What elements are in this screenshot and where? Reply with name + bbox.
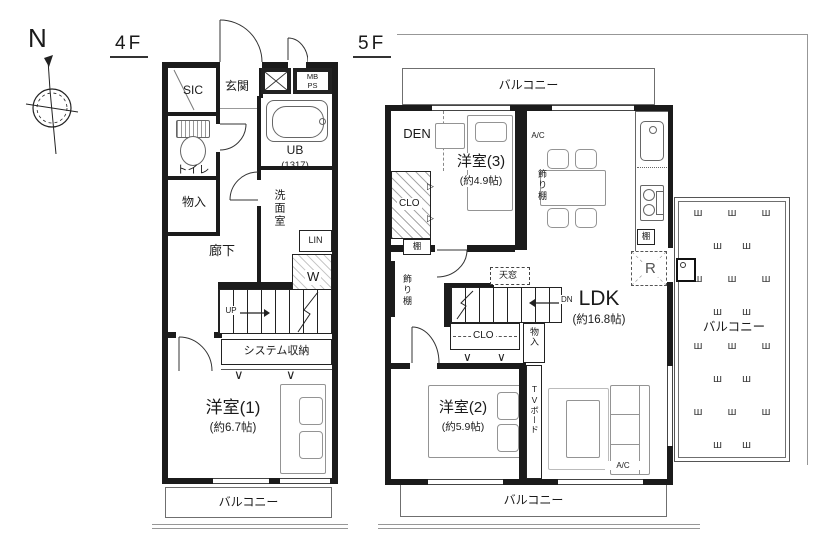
shelf-kitchen-box: 棚	[637, 229, 655, 245]
wall	[391, 363, 410, 369]
grass-tuft-icon: ш	[728, 407, 737, 418]
living-table-icon	[566, 400, 600, 458]
floor5-balcony-bottom: バルコニー	[400, 484, 667, 517]
grass-tuft-icon: ш	[742, 440, 751, 451]
grass-tuft-icon: ш	[742, 241, 751, 252]
meter-box-label: MB PS	[297, 73, 328, 90]
compass-north-label: N	[28, 24, 47, 54]
x-cross-icon	[265, 72, 287, 90]
balcony-door-opening	[667, 248, 673, 282]
toilet-door-icon	[218, 122, 248, 152]
linen-label: LIN	[300, 235, 331, 245]
grass-tuft-icon: ш	[742, 374, 751, 385]
balcony-fixture-box	[676, 258, 696, 282]
sink-icon	[640, 121, 664, 161]
skylight-box: 天窓	[490, 267, 530, 285]
grass-tuft-icon: ш	[762, 341, 771, 352]
toilet-bowl-icon	[180, 136, 206, 166]
display-shelf-right-label: 飾り棚	[528, 157, 546, 213]
grass-tuft-icon: ш	[694, 341, 703, 352]
chair-icon	[575, 208, 597, 228]
window-icon	[558, 479, 643, 485]
bedroom3-name: 洋室(3)	[455, 153, 507, 170]
floor4-balcony: バルコニー	[165, 487, 332, 518]
window-icon	[432, 105, 510, 111]
window-icon	[552, 105, 634, 111]
bedroom1-size: (約6.7帖)	[210, 422, 257, 434]
up-arrow-icon	[240, 308, 270, 318]
pillow-icon	[299, 397, 323, 425]
roof-balcony: шшшшшшшшшшшшшшшшшшшш バルコニー	[674, 197, 790, 462]
meter-box-door-icon	[286, 36, 308, 62]
fridge-label: R	[643, 260, 658, 277]
wall	[257, 96, 261, 170]
floorplan-canvas: N 4F 5F SIC 玄関	[0, 0, 828, 552]
bedroom1-name: 洋室(1)	[206, 398, 261, 417]
stove-icon	[640, 185, 664, 221]
ldk-label: LDK	[559, 287, 639, 311]
grass-tuft-icon: ш	[728, 274, 737, 285]
sic-label: SIC	[170, 84, 216, 98]
unit-bath-label: UB (1317)	[262, 144, 328, 172]
floor5-balcony-top-label: バルコニー	[403, 79, 654, 93]
wall	[257, 206, 261, 284]
bedroom2-label: 洋室(2) (約5.9帖)	[421, 399, 505, 436]
chair-icon	[575, 149, 597, 169]
unit-bath-size: (1317)	[281, 160, 308, 171]
floor4-plan: SIC 玄関 MB PS UB (1317) トイレ 物入	[162, 62, 338, 484]
system-storage-box: システム収納	[221, 339, 332, 365]
faucet-icon	[649, 126, 657, 134]
den-label: DEN	[395, 127, 439, 142]
wall	[168, 232, 220, 236]
pipe-support-icon: ∨	[286, 368, 296, 381]
window-icon	[667, 366, 673, 446]
stair-break-icon	[296, 290, 322, 334]
floor5-balcony-bottom-label: バルコニー	[401, 494, 666, 508]
wall	[168, 112, 220, 116]
burner-icon	[643, 204, 655, 216]
skylight-label: 天窓	[497, 270, 519, 280]
tv-board-box: TVボード	[526, 365, 542, 479]
stair-break-icon	[453, 289, 475, 321]
system-storage-label: システム収納	[222, 345, 331, 358]
closet1-box: CLO	[391, 171, 431, 239]
toilet-label: トイレ	[169, 164, 217, 177]
grass-tuft-icon: ш	[762, 274, 771, 285]
bathtub-inner	[272, 106, 324, 138]
storage-label-5f: 物入	[529, 327, 538, 347]
grass-tuft-icon: ш	[713, 307, 722, 318]
ac-upper-label: A/C	[525, 131, 551, 140]
grass-tuft-icon: ш	[694, 407, 703, 418]
lower-edge-line-5f	[378, 524, 700, 529]
ldk-size-label: (約16.8帖)	[549, 314, 649, 327]
floor5-title: 5F	[353, 33, 391, 58]
bedroom1-door-icon	[176, 335, 214, 373]
roof-balcony-label: バルコニー	[689, 320, 779, 334]
ac-lower-label: A/C	[605, 461, 641, 470]
grass-tuft-icon: ш	[762, 208, 771, 219]
washroom-label: 洗面室	[266, 176, 284, 240]
storage-box-5f: 物入	[523, 323, 545, 363]
chair-icon	[547, 149, 569, 169]
wall	[519, 363, 526, 479]
floor5-balcony-top: バルコニー	[402, 68, 655, 105]
shelf-kitchen-label: 棚	[638, 232, 654, 242]
bedroom3-size: (約4.9帖)	[458, 175, 505, 187]
meter-opening	[288, 62, 306, 68]
window-icon	[428, 479, 503, 485]
display-shelf-left-label: 飾り棚	[395, 263, 411, 317]
washroom-door-icon	[228, 170, 260, 202]
bedroom3-label: 洋室(3) (約4.9帖)	[441, 153, 521, 190]
entrance-door-icon	[216, 18, 264, 64]
pipe-support-icon: ∨	[497, 351, 506, 363]
entrance-opening	[220, 62, 262, 68]
floor4-title: 4F	[110, 33, 148, 58]
sofa-cushion-line	[611, 414, 639, 415]
hanger-arrow-icon: ▷	[427, 181, 434, 191]
grass-tuft-icon: ш	[713, 241, 722, 252]
pipe-support-icon: ∨	[463, 351, 472, 363]
window-icon	[213, 478, 269, 484]
unit-bath-name: UB	[287, 143, 304, 157]
corridor-label: 廊下	[196, 244, 248, 259]
bedroom2-door-icon	[410, 325, 440, 365]
desk-icon	[435, 123, 465, 149]
dining-table-icon	[540, 170, 606, 206]
pillow-icon	[475, 122, 507, 142]
bedroom1-label: 洋室(1) (約6.7帖)	[174, 398, 292, 437]
bedroom2-size: (約5.9帖)	[440, 421, 487, 433]
closet2-label: CLO	[471, 330, 496, 342]
lower-edge-line-4f	[152, 524, 348, 529]
grass-tuft-icon: ш	[713, 440, 722, 451]
wall	[168, 332, 176, 338]
hanger-arrow-icon: ▷	[427, 213, 434, 223]
pillow-icon	[299, 431, 323, 459]
chair-icon	[547, 208, 569, 228]
grill-icon	[656, 191, 664, 215]
compass-icon	[12, 46, 92, 158]
shelf-left-box: 棚	[403, 239, 431, 255]
down-arrow-icon	[529, 298, 559, 308]
linen-box: LIN	[299, 230, 332, 252]
grass-tuft-icon: ш	[694, 208, 703, 219]
closet1-label: CLO	[397, 198, 422, 210]
grass-tuft-icon: ш	[713, 374, 722, 385]
sofa-cushion-line	[611, 444, 639, 445]
grass-tuft-icon: ш	[742, 307, 751, 318]
wall	[467, 245, 515, 252]
entrance-step-line	[216, 108, 258, 109]
fixture-dot-icon	[680, 262, 686, 268]
bathtub-icon	[266, 100, 328, 142]
entrance-label: 玄関	[216, 80, 258, 94]
floor5-plan: DEN CLO ▷ ▷ 棚 洋室(3) (約4.9帖) A/C 飾り棚	[385, 105, 673, 485]
bedroom3-door-icon	[435, 248, 469, 278]
grass-tuft-icon: ш	[762, 407, 771, 418]
window-icon	[280, 478, 330, 484]
tv-board-label: TVボード	[530, 384, 539, 435]
pipe-support-icon: ∨	[234, 368, 244, 381]
storage-label-4f: 物入	[171, 196, 217, 210]
grass-tuft-icon: ш	[728, 341, 737, 352]
stairs-up-label: UP	[221, 306, 241, 315]
washer-label: W	[305, 270, 321, 285]
floor4-balcony-label: バルコニー	[166, 496, 331, 510]
closet2-box: CLO	[450, 323, 520, 350]
shelf-left-label: 棚	[404, 242, 430, 252]
counter-divider	[637, 167, 667, 168]
drain-icon	[319, 118, 326, 125]
grass-tuft-icon: ш	[728, 208, 737, 219]
wall	[437, 363, 519, 369]
burner-icon	[643, 189, 655, 201]
shaft-box	[261, 68, 291, 94]
bedroom2-name: 洋室(2)	[437, 399, 489, 416]
fridge-space: R	[631, 251, 667, 286]
meter-box: MB PS	[293, 68, 332, 94]
